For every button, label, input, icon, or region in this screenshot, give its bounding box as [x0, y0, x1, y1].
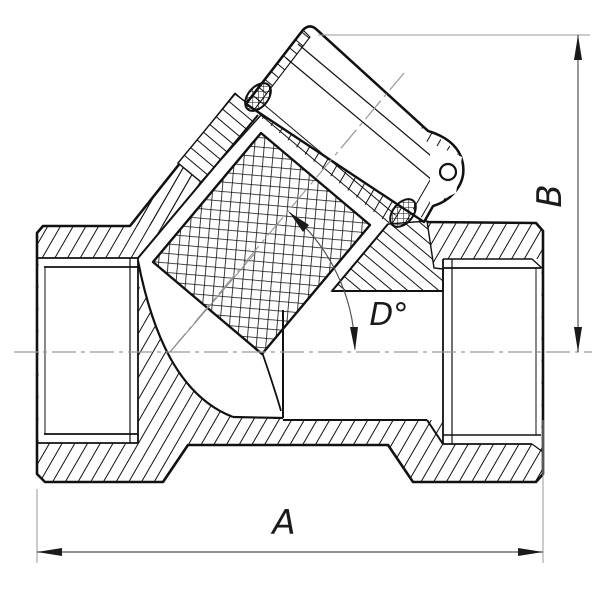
dimension-b-label: B	[530, 184, 570, 207]
valve-body	[37, 27, 543, 483]
drawing-canvas: D° A B	[0, 0, 600, 600]
arrowhead-b-top	[574, 35, 582, 60]
arrowhead-b-bottom	[574, 327, 582, 352]
ear-hole	[440, 164, 456, 180]
angle-label: D°	[369, 297, 408, 333]
left-socket-bore	[39, 258, 139, 443]
dimension-a-label: A	[270, 503, 295, 543]
y-strainer-technical-drawing: D° A B	[0, 0, 600, 600]
arrowhead-a-left	[37, 548, 62, 556]
arrowhead-a-right	[518, 548, 543, 556]
